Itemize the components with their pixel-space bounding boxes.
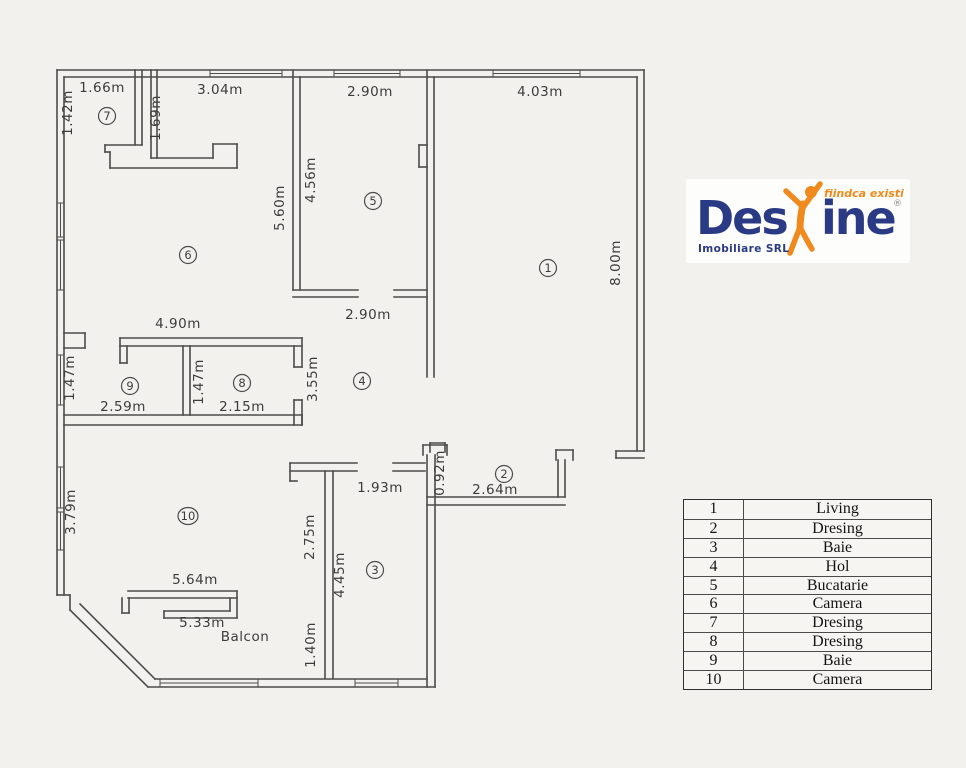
room-number-marker: 5 <box>365 193 382 210</box>
dimension-label: 5.64m <box>172 572 218 588</box>
legend-room-number: 9 <box>684 651 743 670</box>
dimension-label: 2.75m <box>302 514 318 560</box>
legend-room-number: 7 <box>684 613 743 632</box>
legend-room-number: 10 <box>684 670 743 689</box>
legend-room-name: Dresing <box>743 632 931 651</box>
legend-room-name: Living <box>743 500 931 519</box>
room-number-text: 5 <box>369 194 376 208</box>
legend-room-number: 4 <box>684 557 743 576</box>
dimension-label: 2.59m <box>100 399 146 415</box>
dimension-label: 2.15m <box>219 399 265 415</box>
legend-room-number: 5 <box>684 576 743 595</box>
room-number-text: 8 <box>238 376 245 390</box>
dimension-label: 1.42m <box>60 90 76 136</box>
legend-room-name: Baie <box>743 651 931 670</box>
dimension-label: 2.90m <box>345 307 391 323</box>
dimension-label: 4.45m <box>332 552 348 598</box>
scanned-floorplan-page: 1.66m3.04m2.90m4.03m4.90m2.90m2.59m2.15m… <box>0 0 966 768</box>
room-number-text: 3 <box>371 563 378 577</box>
legend-room-name: Camera <box>743 594 931 613</box>
dimension-label: 1.40m <box>303 622 319 668</box>
dimension-label: 2.90m <box>347 84 393 100</box>
room-number-text: 4 <box>358 374 365 388</box>
room-number-marker: 2 <box>496 466 513 483</box>
dimension-label: 1.93m <box>357 480 403 496</box>
room-number-text: 1 <box>544 261 551 275</box>
dimension-label: 8.00m <box>608 240 624 286</box>
legend-room-name: Dresing <box>743 519 931 538</box>
room-number-text: 2 <box>500 467 507 481</box>
room-number-text: 7 <box>103 109 110 123</box>
dimension-label: Balcon <box>221 629 270 645</box>
legend-room-number: 8 <box>684 632 743 651</box>
legend-room-name: Baie <box>743 538 931 557</box>
dimension-label: 4.03m <box>517 84 563 100</box>
room-number-text: 9 <box>126 379 133 393</box>
legend-room-name: Camera <box>743 670 931 689</box>
room-number-marker: 4 <box>354 373 371 390</box>
room-number-marker: 6 <box>180 247 197 264</box>
dimension-label: 1.47m <box>191 359 207 405</box>
room-number-marker: 9 <box>122 378 139 395</box>
legend-room-name: Hol <box>743 557 931 576</box>
agency-logo: Des ine ® fiindca existi Imobiliare SRL <box>686 179 910 263</box>
logo-text-des: Des <box>696 195 787 241</box>
dimension-label: 1.69m <box>148 95 164 141</box>
room-number-marker: 8 <box>234 375 251 392</box>
room-number-marker: 1 <box>540 260 557 277</box>
room-number-text: 6 <box>184 248 191 262</box>
room-number-marker: 3 <box>367 562 384 579</box>
legend-room-name: Dresing <box>743 613 931 632</box>
wall-segment <box>80 604 155 679</box>
dimension-label: 2.64m <box>472 482 518 498</box>
legend-room-name: Bucatarie <box>743 576 931 595</box>
dimension-label: 5.60m <box>272 185 288 231</box>
room-number-text: 10 <box>181 509 196 523</box>
dimension-label: 1.66m <box>79 80 125 96</box>
dimension-label: 3.55m <box>305 356 321 402</box>
logo-subtitle: Imobiliare SRL <box>698 243 789 255</box>
wall-segment <box>70 610 148 687</box>
room-markers-layer: 12345678910 <box>99 108 557 579</box>
legend-room-number: 6 <box>684 594 743 613</box>
logo-text-ine: ine <box>821 195 895 241</box>
logo-tagline: fiindca existi <box>824 187 904 200</box>
room-legend-table: 1Living2Dresing3Baie4Hol5Bucatarie6Camer… <box>683 499 932 690</box>
logo-person-head <box>805 186 817 198</box>
room-number-marker: 7 <box>99 108 116 125</box>
dimension-label: 4.56m <box>303 157 319 203</box>
walls-layer <box>57 70 644 687</box>
dimension-label: 3.79m <box>63 489 79 535</box>
registered-trademark-icon: ® <box>893 199 902 209</box>
legend-room-number: 3 <box>684 538 743 557</box>
dimension-label: 4.90m <box>155 316 201 332</box>
legend-room-number: 2 <box>684 519 743 538</box>
dimension-label: 1.47m <box>62 355 78 401</box>
dimension-label: 0.92m <box>432 450 448 496</box>
room-number-marker: 10 <box>178 508 198 525</box>
dimension-label: 3.04m <box>197 82 243 98</box>
legend-room-number: 1 <box>684 500 743 519</box>
dimension-label: 5.33m <box>179 615 225 631</box>
